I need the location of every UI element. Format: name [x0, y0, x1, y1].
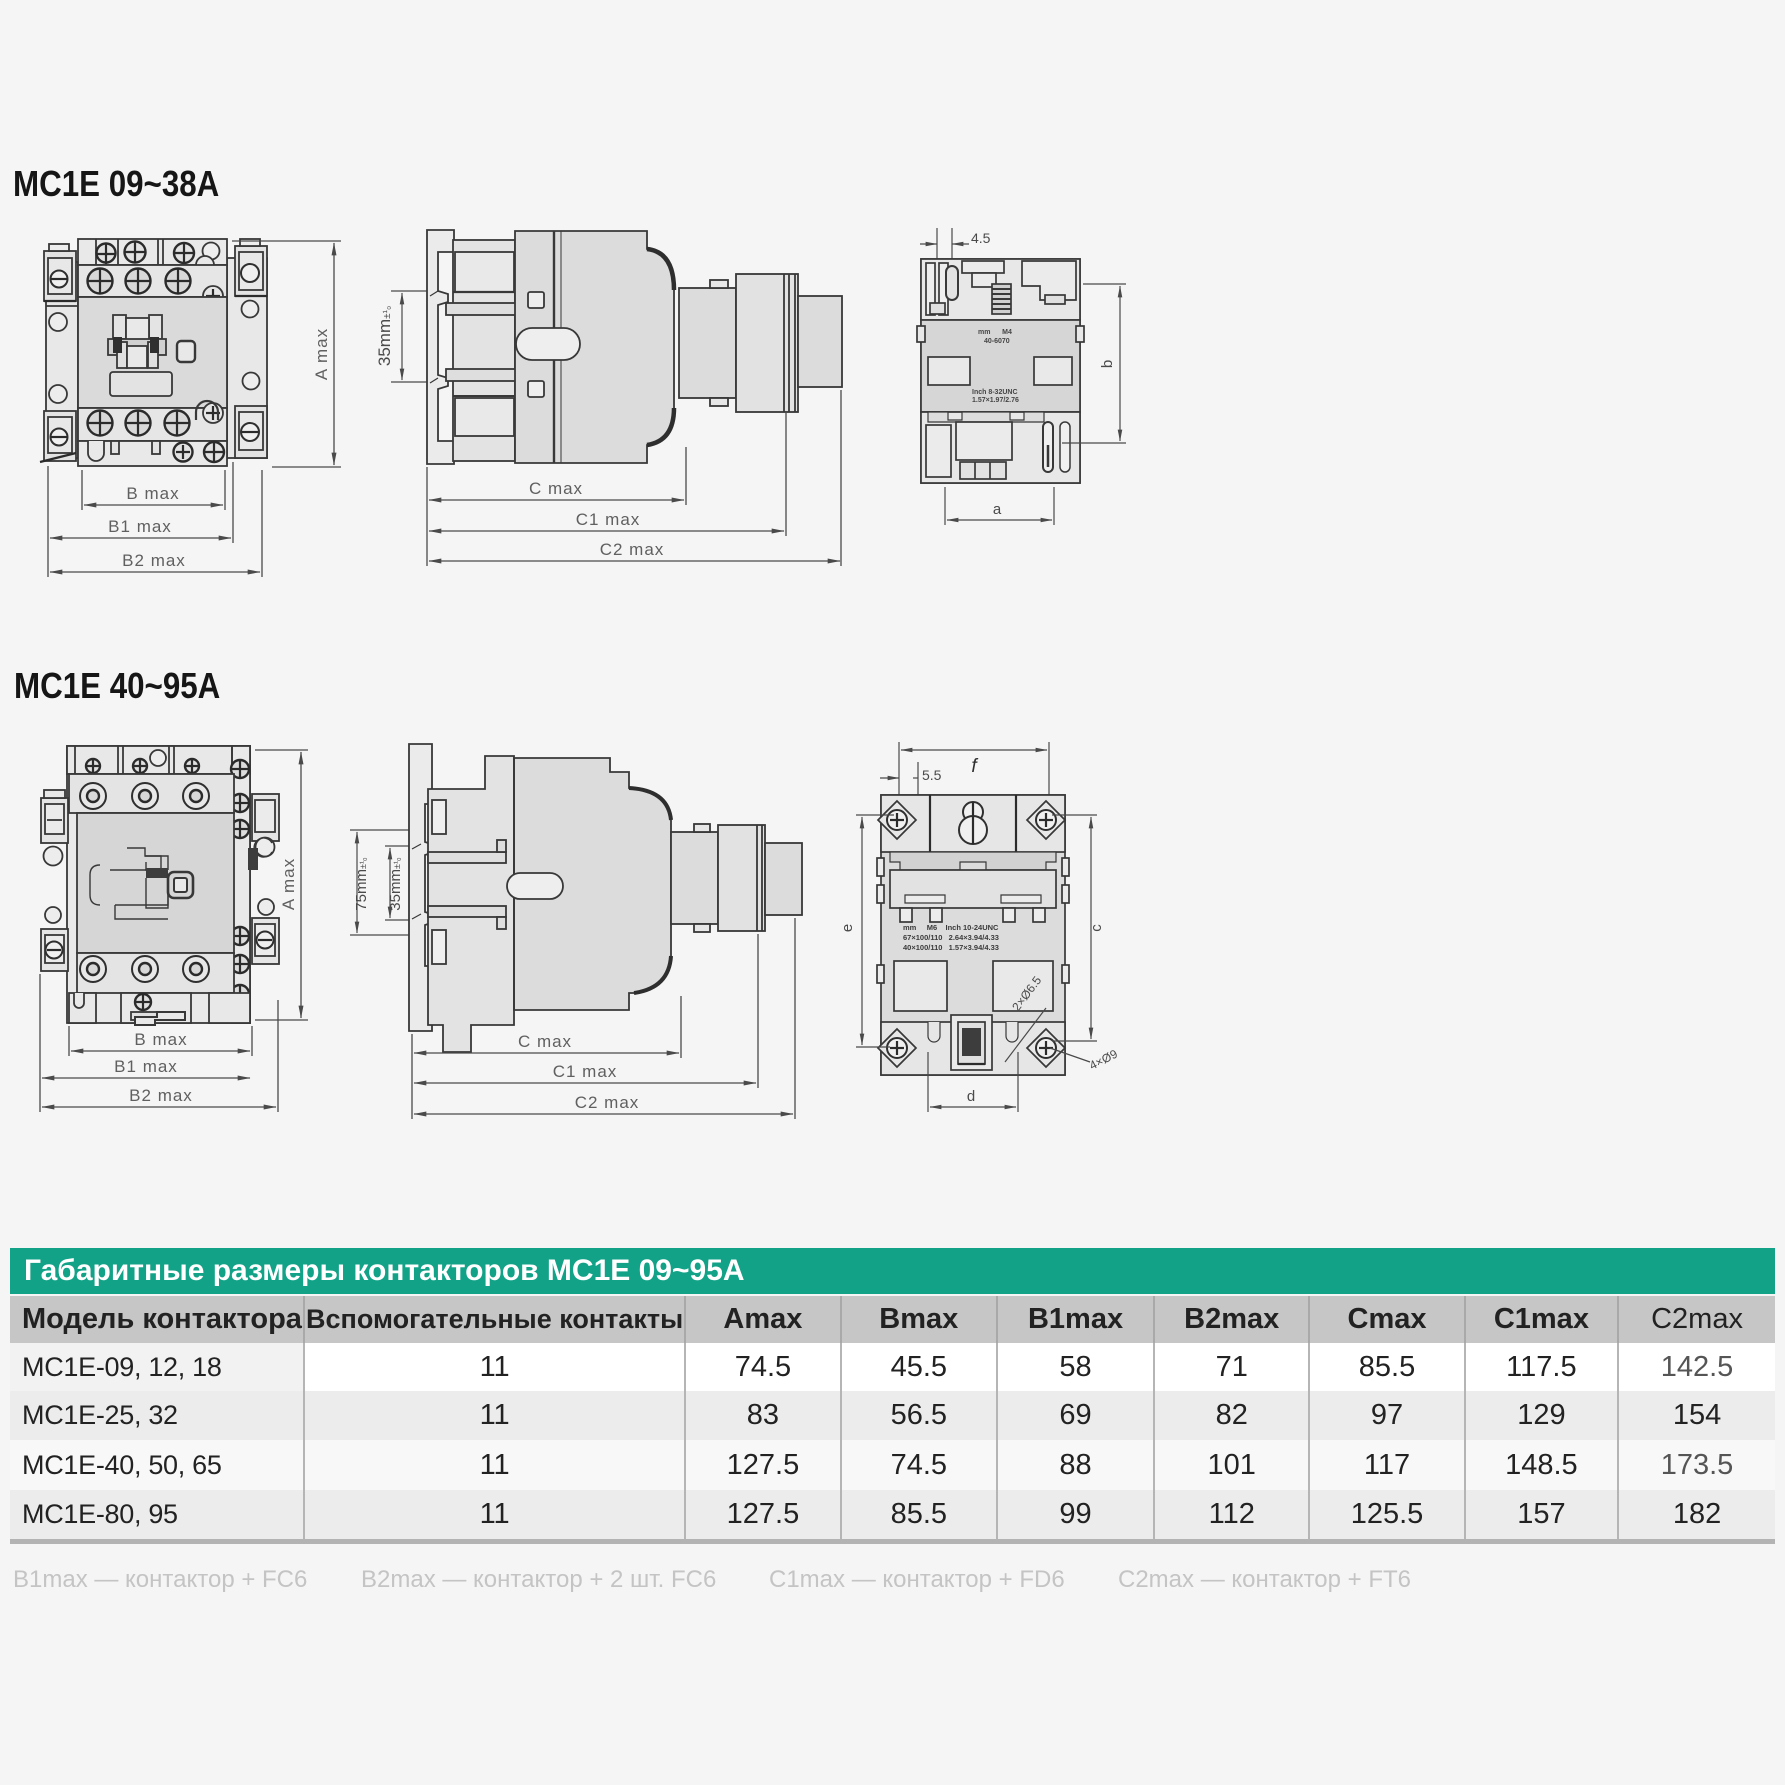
svg-text:mm M6 Inch 10-24UNC: mm M6 Inch 10-24UNC: [903, 923, 999, 932]
svg-text:e: e: [839, 924, 856, 932]
svg-text:d: d: [967, 1088, 975, 1105]
svg-text:f: f: [971, 756, 978, 777]
svg-text:A max: A max: [312, 328, 331, 380]
svg-text:B max: B max: [126, 484, 179, 503]
svg-text:c: c: [1088, 924, 1105, 932]
svg-text:C2 max: C2 max: [575, 1093, 640, 1112]
svg-text:5.5: 5.5: [922, 767, 942, 783]
svg-text:C max: C max: [518, 1032, 572, 1051]
svg-text:a: a: [993, 501, 1002, 518]
svg-text:B2 max: B2 max: [122, 551, 186, 570]
svg-text:Inch 8-32UNC: Inch 8-32UNC: [972, 389, 1018, 396]
svg-text:67×100/110 2.64×3.94/4.33: 67×100/110 2.64×3.94/4.33: [903, 933, 999, 942]
svg-text:1.57×1.97/2.76: 1.57×1.97/2.76: [972, 397, 1019, 404]
svg-text:mm M4: mm M4: [978, 329, 1012, 336]
svg-text:C1 max: C1 max: [553, 1062, 618, 1081]
svg-text:C1 max: C1 max: [576, 510, 641, 529]
svg-text:B2 max: B2 max: [129, 1086, 193, 1105]
svg-text:40-6070: 40-6070: [984, 338, 1010, 345]
svg-text:A max: A max: [279, 858, 298, 910]
svg-text:b: b: [1099, 360, 1116, 368]
svg-text:B max: B max: [134, 1030, 187, 1049]
svg-text:35mm±¹₀: 35mm±¹₀: [375, 306, 394, 366]
svg-text:C2 max: C2 max: [600, 540, 665, 559]
svg-text:40×100/110 1.57×3.94/4.33: 40×100/110 1.57×3.94/4.33: [903, 943, 999, 952]
svg-text:B1 max: B1 max: [108, 517, 172, 536]
svg-text:C max: C max: [529, 479, 583, 498]
svg-text:4.5: 4.5: [971, 230, 991, 246]
svg-text:4×Ø9: 4×Ø9: [1087, 1047, 1120, 1073]
svg-text:B1 max: B1 max: [114, 1057, 178, 1076]
svg-text:75mm±¹₀: 75mm±¹₀: [353, 857, 370, 911]
